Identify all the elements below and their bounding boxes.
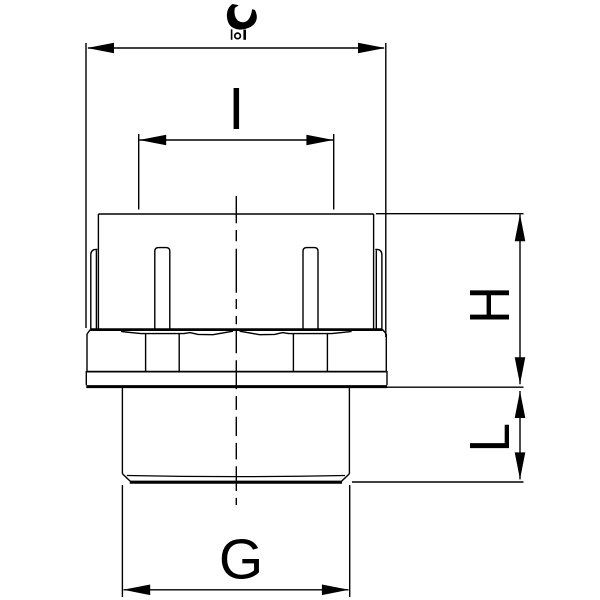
svg-text:L: L: [457, 423, 521, 453]
svg-text:I: I: [228, 76, 244, 142]
svg-text:H: H: [458, 286, 522, 324]
svg-text:G: G: [219, 527, 263, 591]
